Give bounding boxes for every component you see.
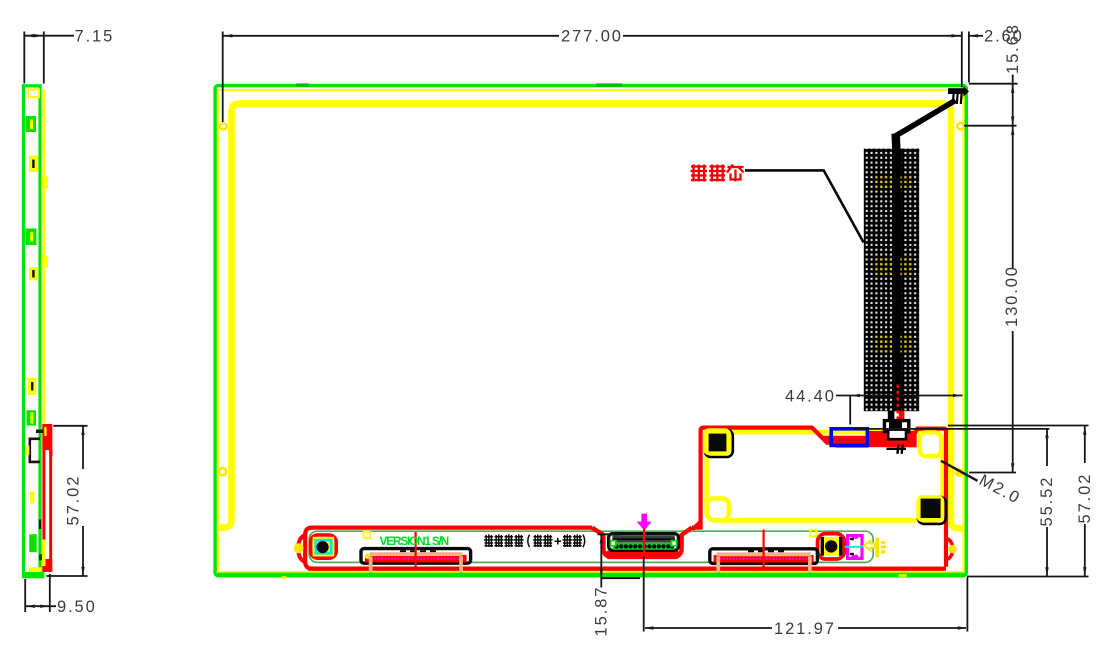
svg-text:55.52: 55.52 [1038, 476, 1056, 527]
svg-text:57.02: 57.02 [1076, 473, 1094, 524]
svg-text:277.00: 277.00 [561, 28, 623, 46]
svg-text:130.00: 130.00 [1003, 265, 1021, 327]
svg-text:15.68: 15.68 [1004, 23, 1022, 74]
svg-text:7.15: 7.15 [75, 28, 115, 46]
svg-text:57.02: 57.02 [65, 475, 83, 526]
svg-text:9.50: 9.50 [57, 598, 97, 616]
svg-text:15.87: 15.87 [592, 586, 610, 637]
svg-text:121.97: 121.97 [774, 620, 836, 638]
svg-text:44.40: 44.40 [785, 388, 836, 406]
svg-text:VERSION1 S/N: VERSION1 S/N [380, 534, 449, 548]
svg-text:M2.0: M2.0 [976, 471, 1024, 508]
